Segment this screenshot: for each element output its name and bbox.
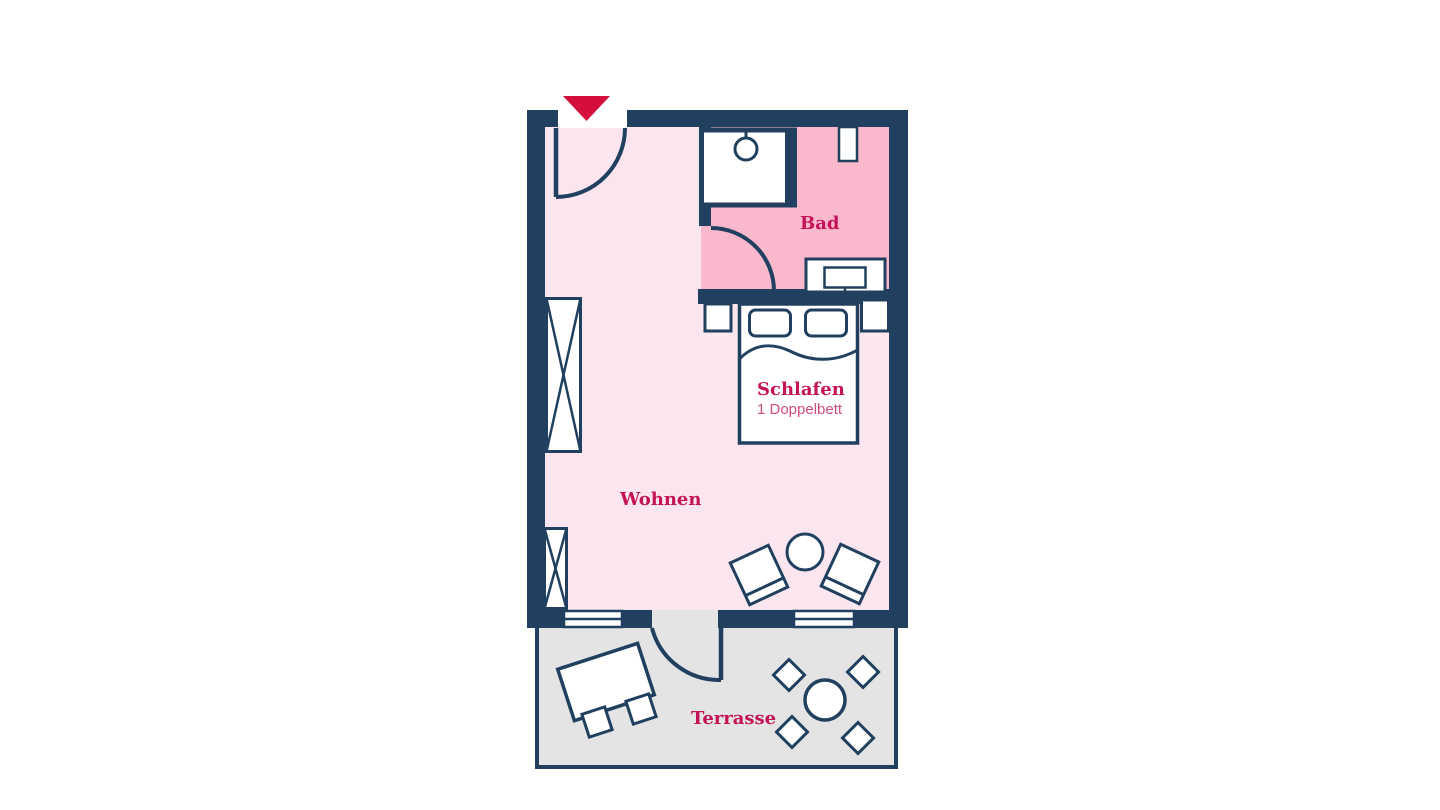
floorplan-graphics <box>0 0 1440 810</box>
floorplan: Bad Schlafen 1 Doppelbett Wohnen Terrass… <box>0 0 1440 810</box>
nightstand-icon <box>705 304 731 331</box>
terrace-chair-icon <box>626 694 656 724</box>
terrace-doorway <box>652 610 718 630</box>
bathroom-niche-icon <box>839 127 857 161</box>
wardrobe-icon <box>545 529 567 609</box>
nightstand-icon <box>862 300 889 331</box>
side-table-icon <box>787 534 823 570</box>
terrace-chair-icon <box>582 707 612 737</box>
room-label-bad: Bad <box>800 214 839 234</box>
double-bed-icon <box>740 304 858 443</box>
shower-icon <box>702 128 798 207</box>
room-label-schlafen: Schlafen <box>757 380 845 400</box>
round-table-icon <box>805 680 845 720</box>
washbasin-icon <box>806 259 885 293</box>
window-icon <box>564 611 622 627</box>
wardrobe-icon <box>547 299 581 452</box>
window-icon <box>794 611 854 627</box>
pillow-icon <box>806 310 847 336</box>
room-sublabel-doppelbett: 1 Doppelbett <box>757 402 842 419</box>
room-label-wohnen: Wohnen <box>620 490 701 510</box>
pillow-icon <box>750 310 791 336</box>
room-label-terrasse: Terrasse <box>691 709 776 729</box>
